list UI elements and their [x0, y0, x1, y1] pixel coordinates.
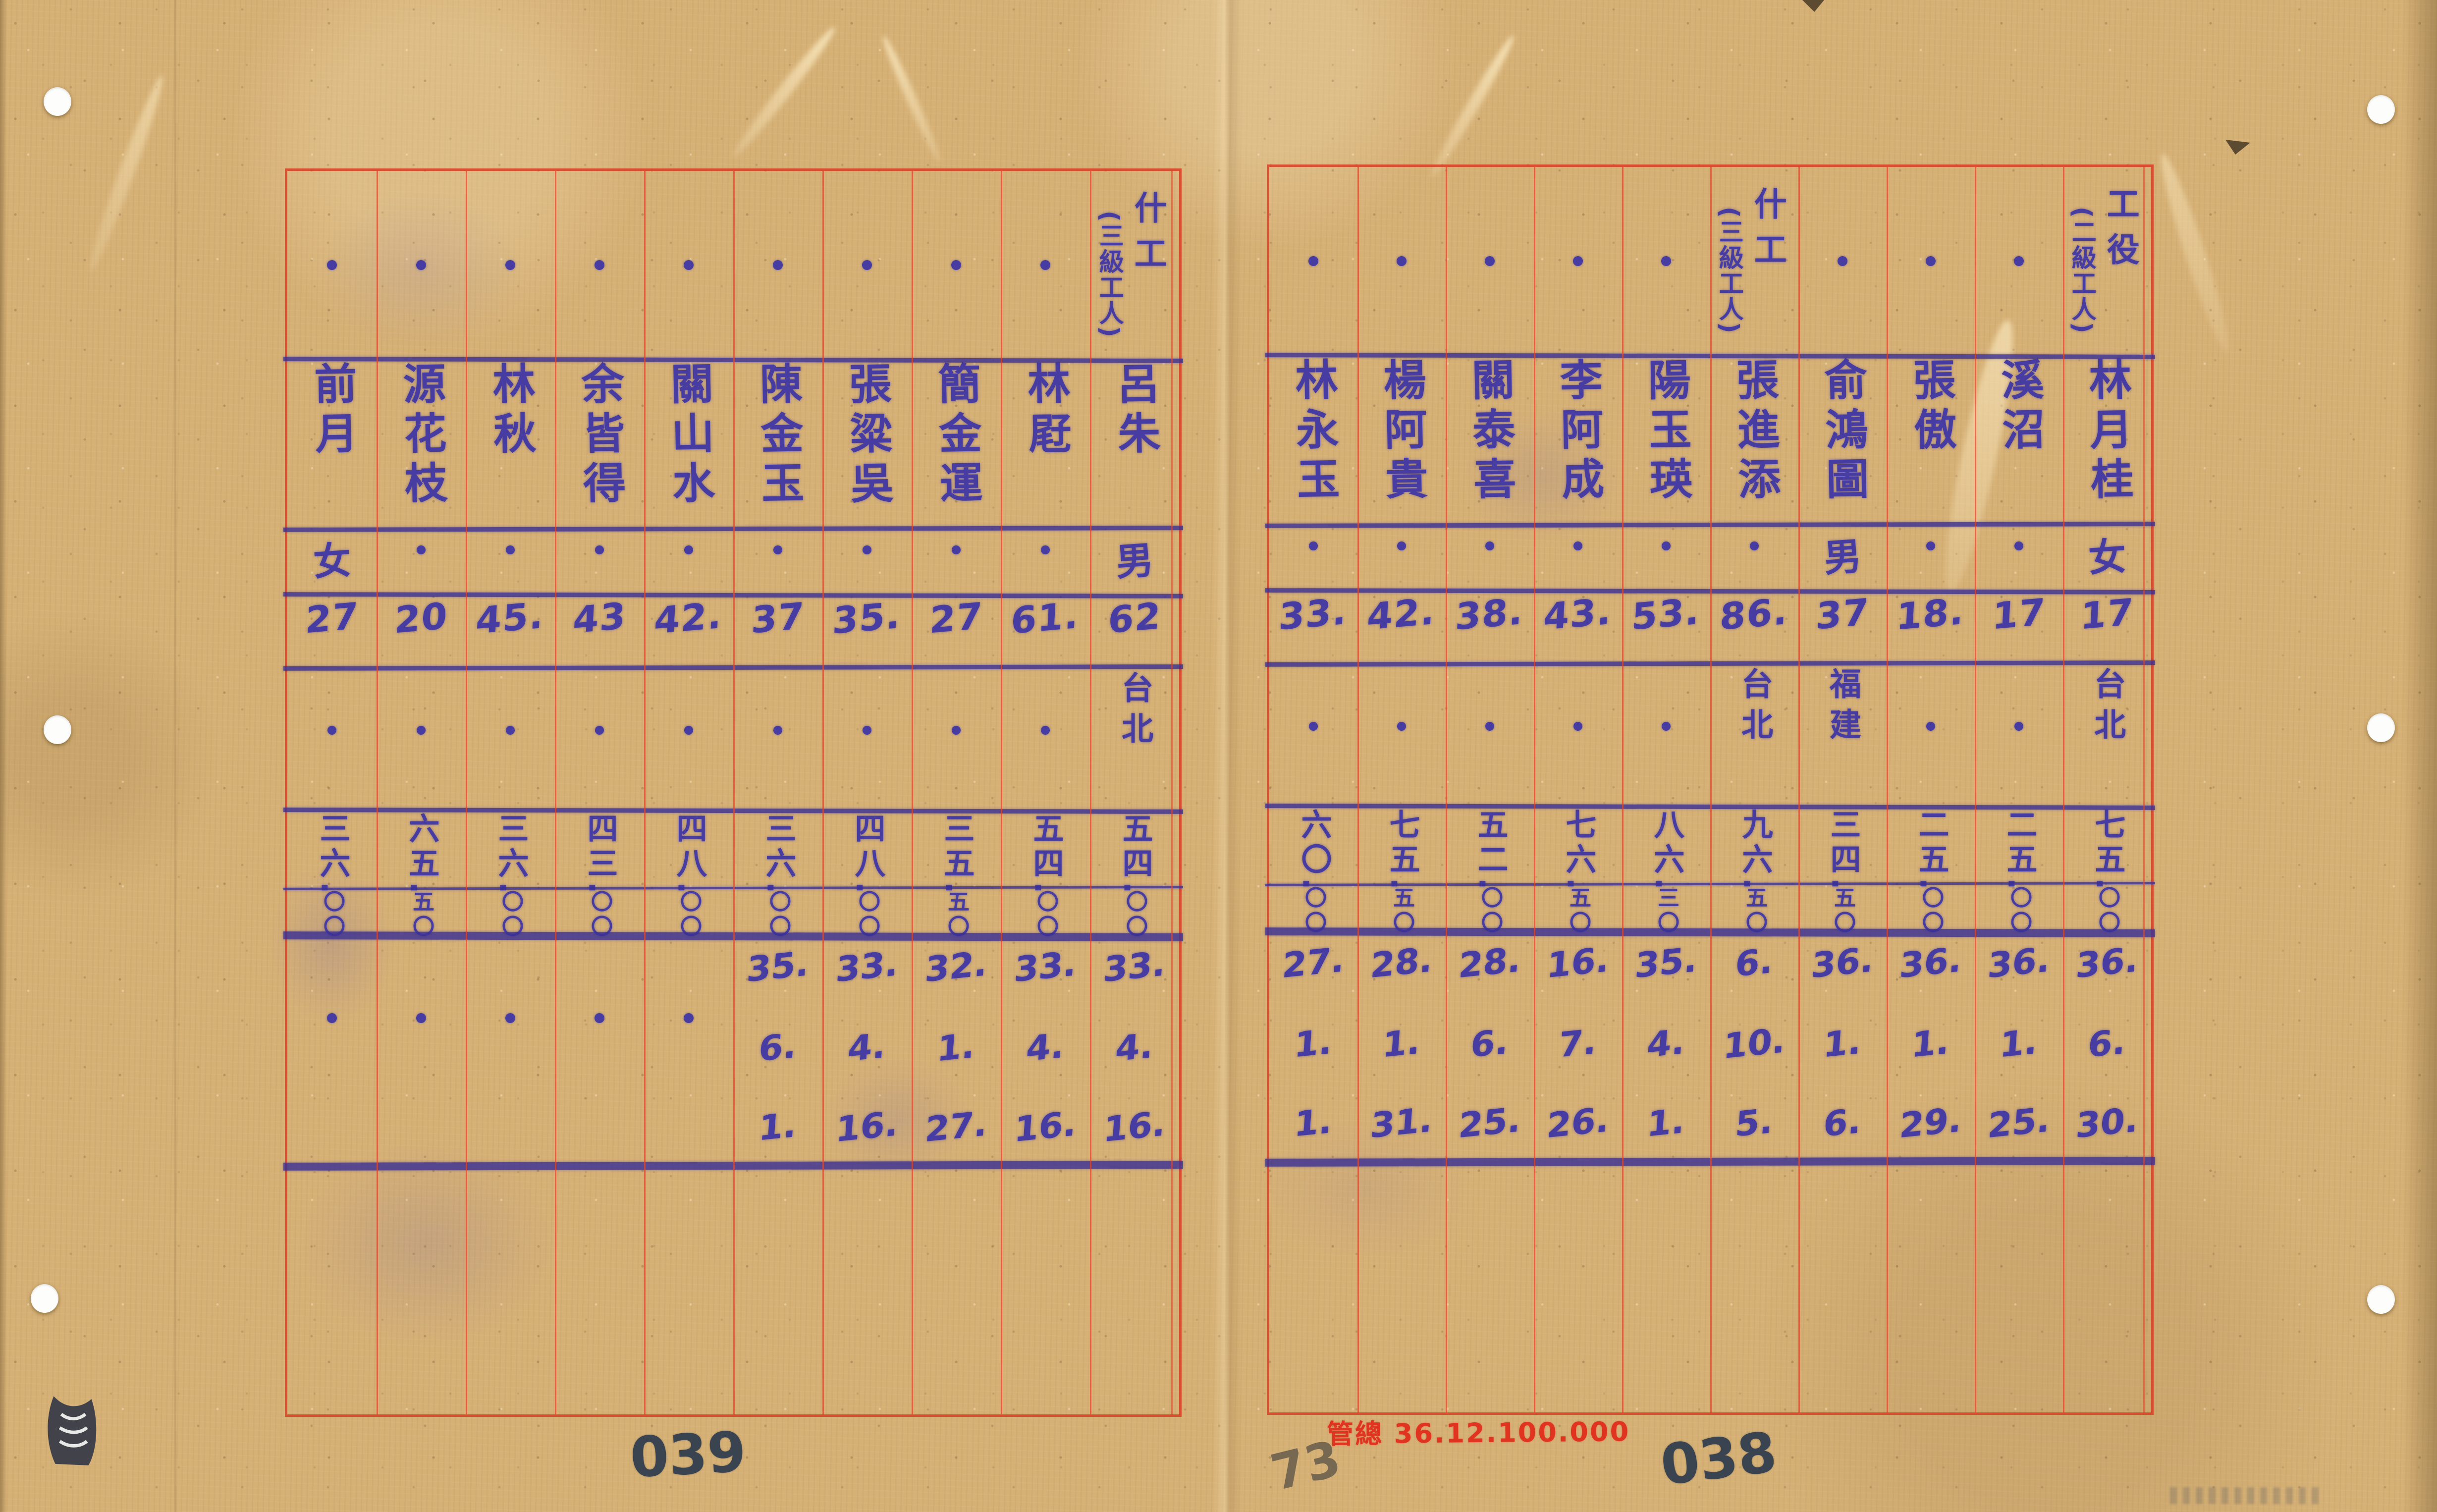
wage-cell: 四八.	[644, 812, 733, 898]
age-value: 53.	[1631, 590, 1702, 639]
hire-date-part: 33.	[1102, 943, 1167, 990]
roster-column: 溪沼17二五.〇〇36.1.25.	[1975, 167, 2063, 1412]
ditto-cell	[1269, 722, 1357, 731]
ditto-dot-icon	[506, 545, 515, 554]
column-grid-line	[1171, 171, 1173, 1414]
ditto-cell	[733, 260, 822, 270]
punch-hole	[44, 715, 71, 744]
ditto-cell	[377, 545, 466, 554]
wage-cents-cell: 〇〇	[1090, 890, 1179, 940]
scanned-document: 前月女27三六.〇〇源花枝20六五.五〇林秋45.三六.〇〇余皆得43四三.〇〇…	[0, 0, 2437, 1512]
wage-cell: 五二.	[1446, 809, 1534, 894]
age-cell: 86.	[1710, 593, 1798, 636]
worker-name-cell: 余皆得	[555, 362, 644, 510]
age-cell: 37	[733, 597, 822, 640]
column-grid-line	[1975, 167, 1976, 1412]
wage-value: 七六.	[1564, 809, 1593, 894]
ditto-dot-icon	[1573, 256, 1583, 266]
ditto-cell	[644, 726, 733, 735]
column-grid-line	[2063, 167, 2064, 1412]
hire-date-cell: 6.	[1710, 942, 1798, 983]
illegible-watermark	[2170, 1487, 2319, 1504]
wage-value: 二五.	[1916, 809, 1946, 894]
page-number-left: 039	[629, 1420, 748, 1490]
column-grid-line	[644, 171, 646, 1414]
hire-date-part: 6.	[758, 1025, 798, 1069]
wage-value: 四八.	[853, 812, 882, 898]
hire-date-part: 31.	[1369, 1099, 1434, 1146]
wage-cell: 二五.	[1975, 809, 2063, 894]
ditto-dot-icon	[684, 260, 694, 270]
hire-date-part: 28.	[1369, 939, 1434, 986]
age-value: 37	[1815, 591, 1870, 638]
ditto-dot-icon	[1309, 541, 1318, 550]
worker-name-cell: 張粱吳	[822, 362, 912, 510]
hire-date-cell: 29.	[1887, 1102, 1975, 1143]
ditto-dot-icon	[1926, 541, 1935, 550]
ditto-dot-icon	[1661, 256, 1671, 266]
hire-date-cell: 27.	[912, 1106, 1001, 1147]
hire-date-part: 33.	[1013, 943, 1078, 990]
job-title-main: 什工	[1744, 187, 1791, 278]
worker-name-cell: 溪沼	[1975, 358, 2063, 457]
ditto-dot-icon	[1309, 722, 1318, 731]
age-cell: 42.	[644, 597, 733, 640]
roster-column: 工役(二級工人)林月桂女17台北七五.〇〇36.6.30.	[2063, 167, 2151, 1412]
age-value: 43	[572, 595, 627, 642]
ditto-cell	[1446, 256, 1534, 266]
ditto-cell	[1622, 256, 1710, 266]
roster-column: 簡金運27三五.五〇32.1.27.	[912, 171, 1001, 1414]
age-cell: 62	[1090, 597, 1179, 640]
ditto-cell	[287, 726, 377, 735]
archive-logo-icon	[42, 1393, 102, 1468]
ditto-dot-icon	[417, 726, 426, 735]
hire-date-part: 25.	[1986, 1099, 2051, 1146]
age-cell: 27	[287, 597, 377, 640]
wage-cents-cell: 〇〇	[1001, 890, 1090, 940]
hire-date-part: 28.	[1457, 939, 1522, 986]
ditto-dot-icon	[1926, 722, 1935, 731]
gender-cell: 女	[287, 531, 377, 585]
ditto-dot-icon	[1397, 722, 1406, 731]
ditto-cell	[1001, 726, 1090, 735]
punch-hole	[44, 87, 71, 116]
roster-column: 林屘61.五四.〇〇33.4.16.	[1001, 171, 1090, 1414]
wage-cell: 四三.	[555, 812, 644, 898]
worker-name: 陽玉瑛	[1643, 357, 1688, 506]
ditto-cell	[1887, 256, 1975, 266]
hire-date-cell: 33.	[1090, 946, 1179, 987]
hire-date-cell: 28.	[1446, 942, 1534, 983]
age-cell: 37	[1798, 593, 1887, 636]
worker-name: 余皆得	[577, 361, 622, 510]
hire-date-part: 6.	[1734, 940, 1775, 984]
ditto-dot-icon	[1485, 541, 1494, 550]
ditto-dot-icon	[952, 545, 961, 554]
ditto-dot-icon	[417, 545, 426, 554]
wage-value: 三六.	[496, 812, 525, 898]
ditto-dot-icon	[416, 260, 426, 270]
ditto-dot-icon	[327, 726, 336, 735]
wage-cents: 〇〇	[1034, 890, 1056, 940]
wage-cell: 七六.	[1534, 809, 1622, 894]
wage-value: 三六.	[763, 812, 793, 898]
hire-date-cell: 36.	[1975, 942, 2063, 983]
worker-name-cell: 關泰喜	[1446, 358, 1534, 506]
hire-date-part: 1.	[936, 1025, 976, 1069]
age-value: 42.	[1366, 590, 1437, 639]
hire-date-cell: 35.	[1622, 942, 1710, 983]
worker-name-cell: 李阿成	[1534, 358, 1622, 506]
punch-hole	[2367, 713, 2395, 742]
origin-cell: 台北	[1090, 671, 1179, 753]
ditto-cell	[466, 545, 555, 554]
ditto-dot-icon	[1485, 256, 1495, 266]
worker-name-cell: 林永玉	[1269, 358, 1357, 506]
worker-name: 張進添	[1732, 357, 1777, 506]
ditto-dot-icon	[1662, 722, 1671, 731]
wage-cell: 四八.	[822, 812, 912, 898]
ditto-dot-icon	[1041, 726, 1050, 735]
column-grid-line	[1798, 167, 1800, 1412]
hire-date-cell: 4.	[822, 1027, 912, 1068]
hire-date-cell: 1.	[1269, 1102, 1357, 1143]
hire-date-cell: 25.	[1975, 1102, 2063, 1143]
ditto-cell	[1887, 541, 1975, 550]
wage-value: 七五.	[2093, 809, 2122, 894]
ditto-dot-icon	[1397, 541, 1406, 550]
ditto-cell	[555, 545, 644, 554]
origin-cell: 台北	[2063, 667, 2151, 749]
wage-cell: 八六.	[1622, 809, 1710, 894]
hire-date-part: 35.	[745, 943, 810, 990]
age-value: 43.	[1543, 590, 1614, 639]
hire-date-part: 1.	[758, 1104, 798, 1148]
hire-date-part: 1.	[1646, 1100, 1686, 1144]
column-grid-line	[555, 171, 556, 1414]
hire-date-part: 6.	[1822, 1100, 1863, 1144]
worker-name-cell: 陳金玉	[733, 362, 822, 510]
crease-mark	[879, 34, 944, 164]
ditto-cell	[1975, 256, 2063, 266]
job-title-cell: 工役(二級工人)	[2063, 187, 2151, 334]
job-title: 什工(三級工人)	[1097, 191, 1172, 338]
column-grid-line	[1001, 171, 1002, 1414]
ditto-cell	[1798, 256, 1887, 266]
origin-value: 福建	[1820, 667, 1865, 749]
punch-hole	[31, 1284, 58, 1313]
wage-value: 四八.	[674, 812, 704, 898]
wage-value: 三五.	[942, 812, 971, 898]
hire-date-part: 36.	[1986, 939, 2051, 986]
worker-name-cell: 源花枝	[377, 362, 466, 510]
wage-value: 三六.	[318, 812, 347, 898]
job-grade: (三級工人)	[1097, 211, 1121, 338]
hire-date-part: 4.	[1025, 1025, 1066, 1069]
gender-mark: 女	[311, 529, 352, 586]
hire-date-cell: 36.	[2063, 942, 2151, 983]
job-grade: (二級工人)	[2070, 207, 2094, 334]
column-grid-line	[1446, 167, 1447, 1412]
center-fold-crease	[1213, 0, 1242, 1512]
ditto-dot-icon	[595, 726, 604, 735]
ditto-cell	[1622, 722, 1710, 731]
hire-date-part: 1.	[1381, 1021, 1422, 1065]
hire-date-cell: 1.	[1975, 1023, 2063, 1064]
gender-cell: 男	[1090, 531, 1179, 585]
ditto-cell	[1357, 722, 1446, 731]
wage-cell: 五四.	[1090, 812, 1179, 898]
hire-date-cell: 7.	[1534, 1023, 1622, 1064]
hire-date-cell: 1.	[1622, 1102, 1710, 1143]
hire-date-cell: 1.	[1269, 1023, 1357, 1064]
hire-date-part: 30.	[2074, 1099, 2139, 1146]
worker-name: 關泰喜	[1467, 357, 1512, 506]
age-value: 37	[750, 595, 806, 642]
ditto-cell	[1622, 541, 1710, 550]
wage-value: 五四.	[1031, 812, 1060, 898]
ditto-cell	[644, 260, 733, 270]
origin-value: 台北	[1112, 671, 1157, 753]
worker-name: 楊阿貴	[1379, 357, 1424, 506]
ditto-dot-icon	[1041, 545, 1050, 554]
ditto-dot-icon	[595, 260, 604, 270]
worker-name: 林秋	[488, 361, 532, 461]
wage-value: 七五.	[1387, 809, 1416, 894]
origin-value: 台北	[1732, 667, 1777, 749]
page-number-right: 038	[1657, 1420, 1780, 1498]
worker-name-cell: 前月	[287, 362, 377, 461]
wage-cell: 二五.	[1887, 809, 1975, 894]
age-value: 33.	[1278, 590, 1349, 639]
ditto-cell	[1975, 541, 2063, 550]
hire-date-cell: 1.	[1887, 1023, 1975, 1064]
ditto-cell	[733, 545, 822, 554]
hire-date-part: 6.	[2087, 1021, 2127, 1065]
hire-date-part: 1.	[1910, 1021, 1951, 1065]
ditto-cell	[1269, 541, 1357, 550]
hire-date-part: 16.	[1102, 1103, 1167, 1150]
roster-table-left: 前月女27三六.〇〇源花枝20六五.五〇林秋45.三六.〇〇余皆得43四三.〇〇…	[285, 168, 1182, 1417]
wage-cell: 三六.	[733, 812, 822, 898]
worker-name: 關山水	[666, 361, 711, 510]
hire-date-part: 4.	[1114, 1025, 1155, 1069]
hire-date-part: 5.	[1734, 1100, 1775, 1144]
age-cell: 42.	[1357, 593, 1446, 636]
ditto-dot-icon	[1397, 256, 1407, 266]
ditto-cell	[555, 726, 644, 735]
wage-value: 四三.	[585, 812, 614, 898]
hire-date-part: 1.	[1999, 1021, 2039, 1065]
ditto-dot-icon	[1573, 722, 1582, 731]
wage-cell: 六〇.	[1269, 809, 1357, 894]
hire-date-cell: 31.	[1357, 1102, 1446, 1143]
gender-mark: 男	[1114, 529, 1155, 586]
hire-date-part: 1.	[1822, 1021, 1863, 1065]
ditto-dot-icon	[416, 1013, 426, 1023]
wage-value: 五四.	[1120, 812, 1149, 898]
worker-name-cell: 張進添	[1710, 358, 1798, 506]
wage-cents: 〇〇	[2096, 886, 2118, 936]
hire-date-part: 36.	[1810, 939, 1875, 986]
ditto-dot-icon	[2014, 541, 2023, 550]
hire-date-cell: 5.	[1710, 1102, 1798, 1143]
hire-date-part: 32.	[923, 943, 988, 990]
wage-cell: 三六.	[466, 812, 555, 898]
hire-date-cell: 16.	[1090, 1106, 1179, 1147]
gender-mark: 女	[2086, 525, 2127, 582]
hire-date-cell: 6.	[1798, 1102, 1887, 1143]
roster-column: 什工(三級工人)呂朱男62台北五四.〇〇33.4.16.	[1090, 171, 1179, 1414]
left-margin-crease	[174, 0, 176, 1512]
wage-cell: 九六.	[1710, 809, 1798, 894]
job-title-cell: 什工(三級工人)	[1090, 191, 1179, 338]
age-value: 18.	[1895, 590, 1966, 639]
worker-name: 前月	[310, 361, 354, 461]
hire-date-part: 26.	[1545, 1099, 1610, 1146]
pencil-folio-number: 73	[1265, 1429, 1346, 1502]
hire-date-cell: 1.	[733, 1106, 822, 1147]
ditto-cell	[1001, 545, 1090, 554]
ditto-dot-icon	[1308, 256, 1318, 266]
job-title-cell: 什工(三級工人)	[1710, 187, 1798, 334]
ditto-cell	[555, 1013, 644, 1023]
worker-name: 俞鴻圖	[1820, 357, 1865, 506]
paper-notch	[1802, 0, 1824, 12]
worker-name: 溪沼	[1997, 357, 2041, 457]
age-cell: 17	[2063, 593, 2151, 636]
ditto-dot-icon	[1838, 256, 1847, 266]
hire-date-cell: 27.	[1269, 942, 1357, 983]
age-cell: 43	[555, 597, 644, 640]
ditto-dot-icon	[1750, 541, 1759, 550]
paper-edge-shadow-right	[2402, 0, 2437, 1512]
hire-date-cell: 16.	[1534, 942, 1622, 983]
column-grid-line	[1090, 171, 1091, 1414]
age-cell: 38.	[1446, 593, 1534, 636]
ditto-cell	[644, 545, 733, 554]
punch-hole	[2367, 95, 2395, 124]
hire-date-cell: 35.	[733, 946, 822, 987]
ditto-cell	[1269, 256, 1357, 266]
worker-name: 呂朱	[1112, 361, 1156, 461]
hire-date-cell: 16.	[822, 1106, 912, 1147]
age-value: 61.	[1010, 594, 1081, 643]
age-value: 86.	[1719, 590, 1790, 639]
ditto-dot-icon	[2014, 722, 2023, 731]
ditto-dot-icon	[862, 260, 872, 270]
roster-table-right: 林永玉33.六〇.〇〇27.1.1.楊阿貴42.七五.五〇28.1.31.關泰喜…	[1267, 164, 2154, 1415]
worker-name-cell: 俞鴻圖	[1798, 358, 1887, 506]
age-value: 38.	[1455, 590, 1525, 639]
ditto-cell	[1534, 256, 1622, 266]
worker-name-cell: 楊阿貴	[1357, 358, 1446, 506]
ditto-cell	[466, 260, 555, 270]
ditto-cell	[644, 1013, 733, 1023]
wage-cell: 三六.	[287, 812, 377, 898]
age-cell: 27	[912, 597, 1001, 640]
ditto-cell	[1534, 541, 1622, 550]
hire-date-part: 35.	[1633, 939, 1698, 986]
job-title-main: 什工	[1124, 191, 1172, 282]
hire-date-cell: 25.	[1446, 1102, 1534, 1143]
hire-date-part: 33.	[834, 943, 899, 990]
hire-date-part: 16.	[1545, 939, 1610, 986]
worker-name: 林永玉	[1291, 357, 1336, 506]
hire-date-part: 7.	[1558, 1021, 1598, 1065]
worker-name: 張粱吳	[844, 361, 889, 510]
ditto-dot-icon	[773, 726, 782, 735]
hire-date-cell: 32.	[912, 946, 1001, 987]
ditto-dot-icon	[2014, 256, 2024, 266]
worker-name-cell: 張傲	[1887, 358, 1975, 457]
hire-date-part: 27.	[1281, 939, 1346, 986]
ditto-dot-icon	[327, 1013, 337, 1023]
worker-name: 張傲	[1908, 357, 1952, 457]
column-grid-line	[1622, 167, 1624, 1412]
print-control-stamp: 管總 36.12.100.000	[1327, 1409, 1630, 1451]
ditto-dot-icon	[1662, 541, 1671, 550]
wage-value: 八六.	[1652, 809, 1681, 894]
punch-hole	[2367, 1285, 2395, 1314]
age-value: 45.	[475, 594, 546, 643]
hire-date-cell: 6.	[2063, 1023, 2151, 1064]
wage-value: 六五.	[407, 812, 436, 898]
ditto-cell	[466, 1013, 555, 1023]
age-value: 17	[2079, 591, 2135, 638]
ditto-cell	[822, 260, 912, 270]
hire-date-cell: 4.	[1090, 1027, 1179, 1068]
hire-date-part: 1.	[1293, 1100, 1334, 1144]
ditto-dot-icon	[505, 1013, 515, 1023]
hire-date-cell: 1.	[912, 1027, 1001, 1068]
ditto-dot-icon	[773, 545, 782, 554]
wage-cents: 〇〇	[2008, 886, 2030, 936]
ditto-cell	[1710, 541, 1798, 550]
hire-date-part: 10.	[1722, 1020, 1787, 1067]
hire-date-part: 6.	[1469, 1021, 1510, 1065]
age-value: 20	[393, 595, 449, 642]
hire-date-part: 27.	[923, 1103, 988, 1150]
ditto-cell	[1001, 260, 1090, 270]
hire-date-cell: 4.	[1001, 1027, 1090, 1068]
worker-name: 林屘	[1023, 361, 1067, 461]
job-grade: (三級工人)	[1717, 207, 1741, 334]
ditto-cell	[912, 545, 1001, 554]
ditto-dot-icon	[505, 260, 515, 270]
wage-cents-cell: 〇〇	[1975, 886, 2063, 936]
column-grid-line	[1887, 167, 1888, 1412]
gender-cell: 女	[2063, 527, 2151, 581]
ditto-cell	[912, 260, 1001, 270]
ditto-dot-icon	[684, 726, 693, 735]
ditto-cell	[822, 545, 912, 554]
hire-date-part: 16.	[1013, 1103, 1078, 1150]
wage-cents-cell: 〇〇	[2063, 886, 2151, 936]
ditto-dot-icon	[595, 545, 604, 554]
hire-date-cell: 10.	[1710, 1023, 1798, 1064]
hire-date-cell: 36.	[1798, 942, 1887, 983]
ditto-cell	[377, 260, 466, 270]
ditto-dot-icon	[1926, 256, 1936, 266]
age-value: 27	[304, 595, 360, 642]
hire-date-cell: 6.	[1446, 1023, 1534, 1064]
ditto-dot-icon	[684, 545, 693, 554]
wage-cell: 三四.	[1798, 809, 1887, 894]
worker-name: 陳金玉	[755, 361, 800, 510]
hire-date-part: 4.	[847, 1025, 887, 1069]
